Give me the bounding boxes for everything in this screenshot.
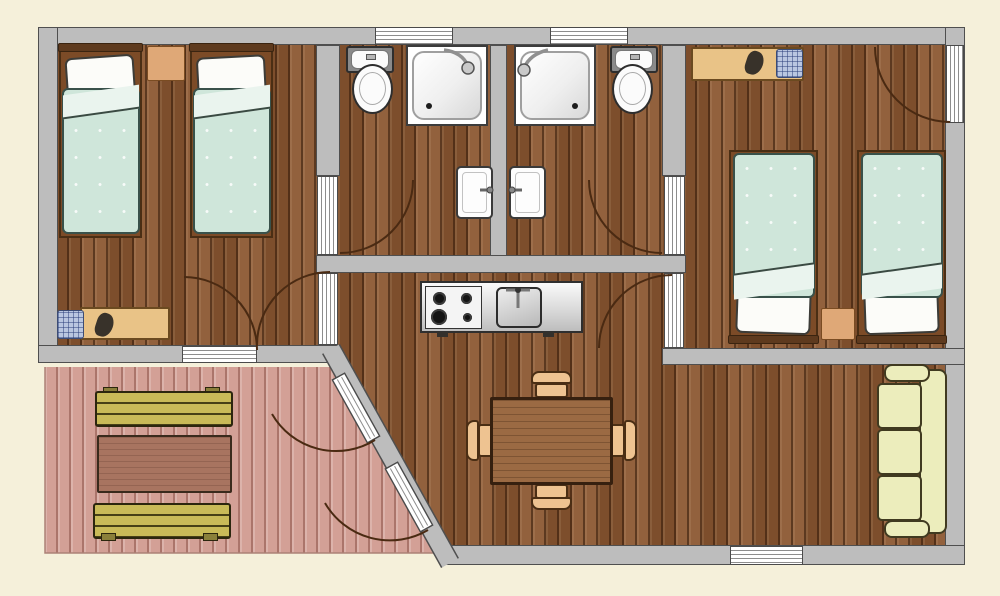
wall-between-bathrooms (490, 45, 507, 256)
sofa-seat-1 (877, 383, 922, 429)
sofa-seat-2 (877, 429, 922, 475)
toilet-left-seat (359, 72, 386, 105)
washbasin-right (509, 166, 546, 219)
bed-right-1-headboard (728, 335, 819, 344)
bedroom-right-exterior-door-leaf (946, 45, 964, 123)
counter-leg-2 (543, 332, 554, 337)
dining-table (490, 397, 613, 485)
sofa-seat-3 (877, 475, 922, 521)
bathroom-right-window (550, 27, 628, 45)
dining-chair-right-back (624, 420, 637, 461)
shower-right (514, 45, 596, 126)
shower-left (406, 45, 488, 126)
bathroom-left-door-leaf (317, 176, 338, 255)
sofa-armrest-bottom (884, 520, 930, 538)
stove (425, 286, 482, 329)
sofa-armrest-top (884, 364, 930, 382)
kitchen-sink (496, 287, 542, 328)
bathroom-right-door-leaf (664, 176, 685, 255)
toilet-left-button (366, 54, 376, 60)
bed-left-1-headboard (58, 43, 143, 52)
wall-bedroom-left-right (316, 45, 340, 176)
desk-left (80, 307, 170, 340)
stove-burner-4 (463, 313, 472, 322)
garden-bench-1 (95, 391, 233, 427)
shower-right-tray (520, 51, 590, 120)
nightstand-left (147, 46, 185, 81)
wall-top (38, 27, 965, 45)
washbasin-right-basin (515, 172, 540, 213)
toilet-right-bowl (612, 64, 653, 114)
shower-right-drain (572, 103, 578, 109)
woven-chair-left (57, 310, 84, 339)
wall-bedroom-right-left (662, 45, 686, 176)
garden-table (97, 435, 232, 493)
sofa-back (919, 369, 947, 534)
bedroom-left-living-door-leaf (318, 273, 338, 345)
wall-bathrooms-bottom (316, 255, 686, 273)
woven-chair-right (776, 49, 803, 78)
dining-chair-bottom-back (531, 497, 572, 510)
bedroom-left-deck-door-leaf (182, 346, 257, 363)
bedroom-right-living-door-leaf (664, 273, 684, 348)
washbasin-left (456, 166, 493, 219)
dining-chair-top-seat (535, 383, 568, 398)
wall-left (38, 27, 58, 363)
washbasin-left-basin (462, 172, 487, 213)
bed-right-2-headboard (856, 335, 947, 344)
bench-2-leg-left (101, 533, 116, 541)
stove-burner-2 (461, 293, 472, 304)
nightstand-right (821, 308, 855, 340)
toilet-left-bowl (352, 64, 393, 114)
bench-2-leg-right (203, 533, 218, 541)
bathroom-left-window (375, 27, 453, 45)
bed-left-2-headboard (189, 43, 274, 52)
toilet-right-button (630, 54, 640, 60)
stove-burner-1 (433, 292, 446, 305)
floor-plan (0, 0, 1000, 596)
wall-bedroom-right-bottom (662, 348, 965, 365)
counter-leg-1 (437, 332, 448, 337)
living-room-window (730, 546, 803, 565)
stove-burner-3 (431, 309, 447, 325)
wall-bottom (440, 545, 965, 565)
shower-left-tray (412, 51, 482, 120)
shower-left-drain (426, 103, 432, 109)
toilet-right-seat (619, 72, 646, 105)
